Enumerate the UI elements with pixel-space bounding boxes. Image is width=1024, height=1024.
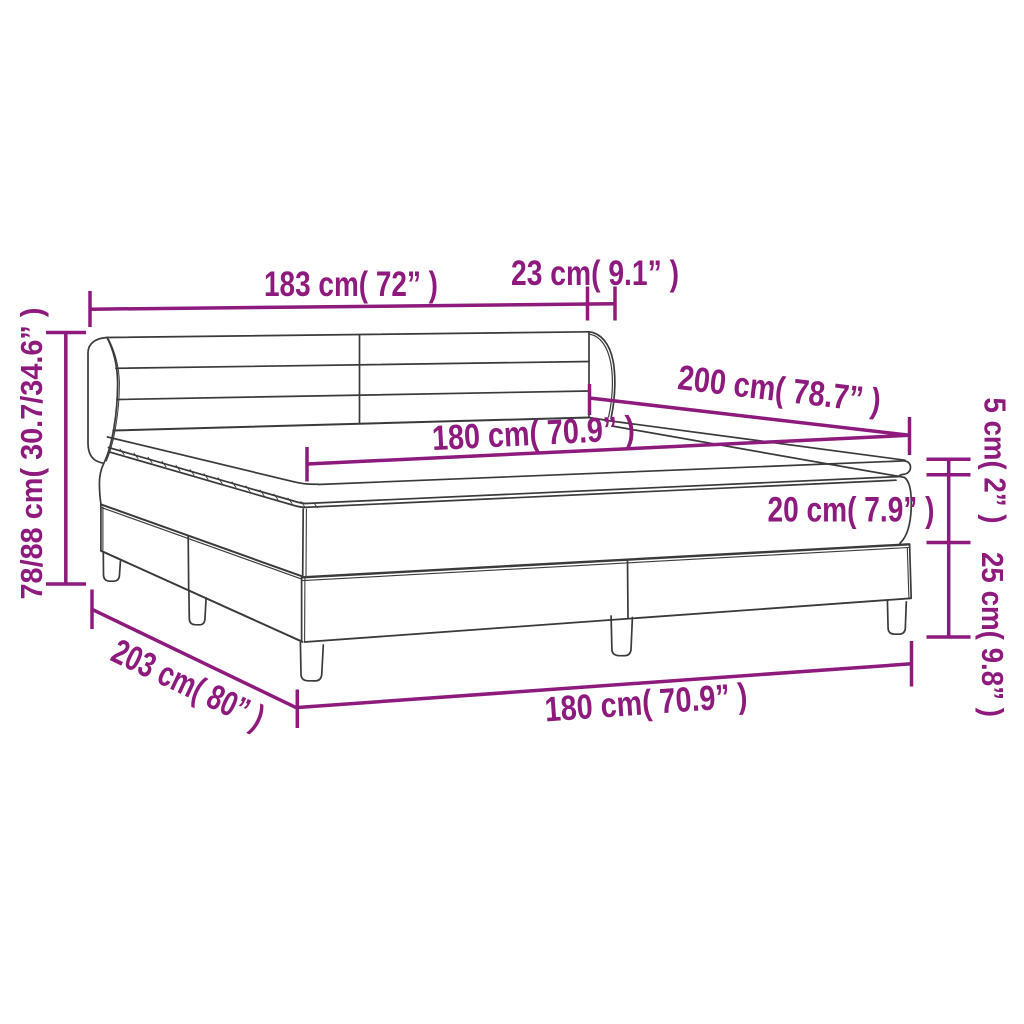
svg-text:25 cm( 9.8” ): 25 cm( 9.8” ) (975, 552, 1010, 717)
svg-text:23 cm( 9.1” ): 23 cm( 9.1” ) (511, 254, 679, 293)
svg-text:183 cm( 72” ): 183 cm( 72” ) (264, 265, 438, 304)
svg-text:5 cm( 2” ): 5 cm( 2” ) (978, 398, 1013, 524)
svg-text:20 cm( 7.9” ): 20 cm( 7.9” ) (768, 491, 935, 530)
svg-text:78/88 cm( 30.7/34.6” ): 78/88 cm( 30.7/34.6” ) (14, 308, 49, 600)
